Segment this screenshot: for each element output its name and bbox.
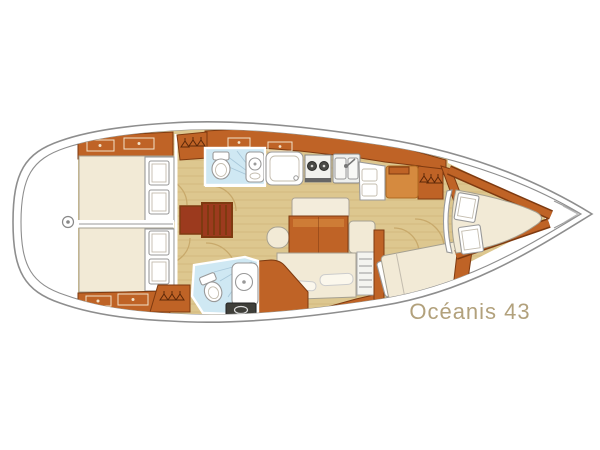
drawer-knob [138,142,141,145]
double-sink-icon [333,154,360,183]
drawer-knob [132,298,135,301]
drawer-knob [279,145,282,148]
hanging-locker-icon [418,166,443,199]
shower-icon [232,263,258,306]
settee-end [349,221,375,253]
aft-head [205,148,265,185]
stern-fitting-icon [63,217,74,228]
salon-stool [267,227,289,248]
louvered-locker [357,252,374,295]
fridge-icon [359,162,385,200]
sink-icon [266,152,303,185]
hanging-locker-icon [177,132,207,160]
interior [78,125,581,323]
companionway-steps-icon [180,203,232,237]
forward-lower-head [192,257,258,317]
salon-bench [292,198,349,218]
counter-cabinet [386,166,418,198]
drawer-knob [99,144,102,147]
pillow-icon [454,192,479,222]
yacht-floorplan: Océanis 43 [0,0,600,450]
boat-name-label: Océanis 43 [409,299,530,324]
sink-icon [246,152,264,182]
drawer-knob [238,141,241,144]
pillow-icon [458,225,484,255]
stove-icon [305,155,331,182]
drawer-knob [97,300,100,303]
salon-table [289,216,348,257]
floorplan-drawing: Océanis 43 [0,0,600,450]
toilet-icon [212,152,230,179]
